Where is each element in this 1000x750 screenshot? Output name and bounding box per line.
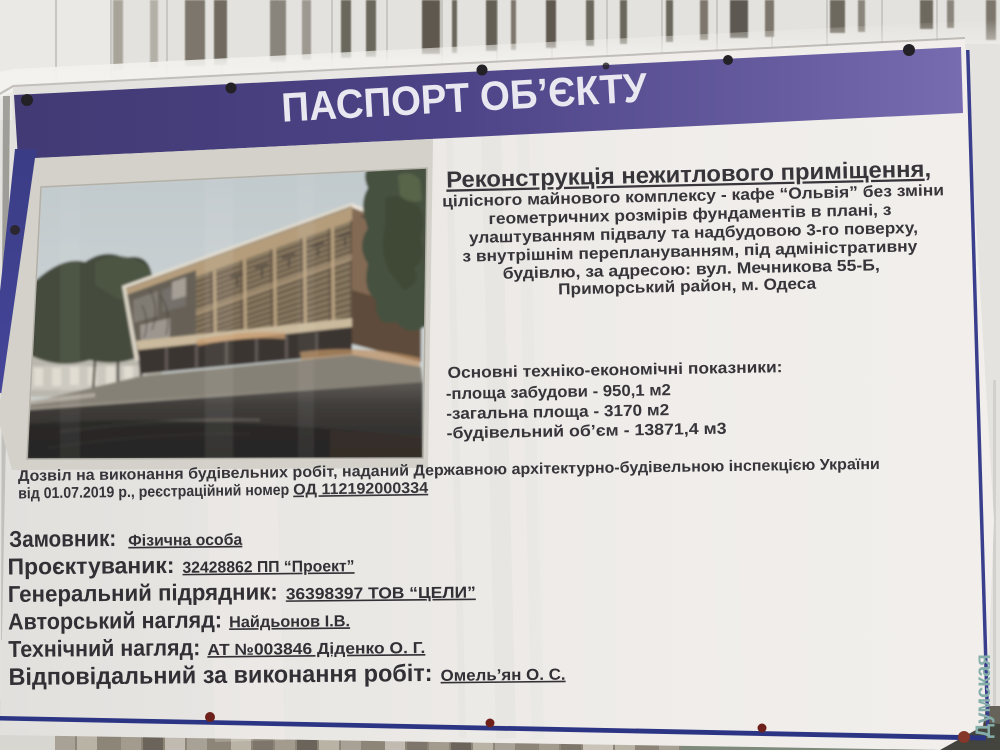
svg-text:Генеральний підрядник:: Генеральний підрядник: <box>8 578 278 607</box>
svg-text:Думская: Думская <box>972 654 995 738</box>
svg-text:Найдьонов І.В.: Найдьонов І.В. <box>229 613 350 631</box>
svg-text:Авторський нагляд:: Авторський нагляд: <box>8 606 222 634</box>
svg-text:36398397 ТОВ “ЦЕЛИ”: 36398397 ТОВ “ЦЕЛИ” <box>286 585 476 604</box>
svg-text:Проєктуваник:: Проєктуваник: <box>7 552 174 580</box>
svg-text:Фізична особа: Фізична особа <box>128 532 242 550</box>
svg-text:Омель’ян О. С.: Омель’ян О. С. <box>440 667 565 685</box>
svg-text:Відповідальний за виконання ро: Відповідальний за виконання робіт: <box>8 660 432 691</box>
svg-text:32428862 ПП “Проект”: 32428862 ПП “Проект” <box>182 558 354 577</box>
svg-text:ОД 112192000334: ОД 112192000334 <box>293 480 429 499</box>
svg-text:Замовник:: Замовник: <box>9 525 116 552</box>
svg-text:АТ №003846 Діденко О. Г.: АТ №003846 Діденко О. Г. <box>207 640 425 659</box>
svg-text:Технічний нагляд:: Технічний нагляд: <box>8 634 200 662</box>
